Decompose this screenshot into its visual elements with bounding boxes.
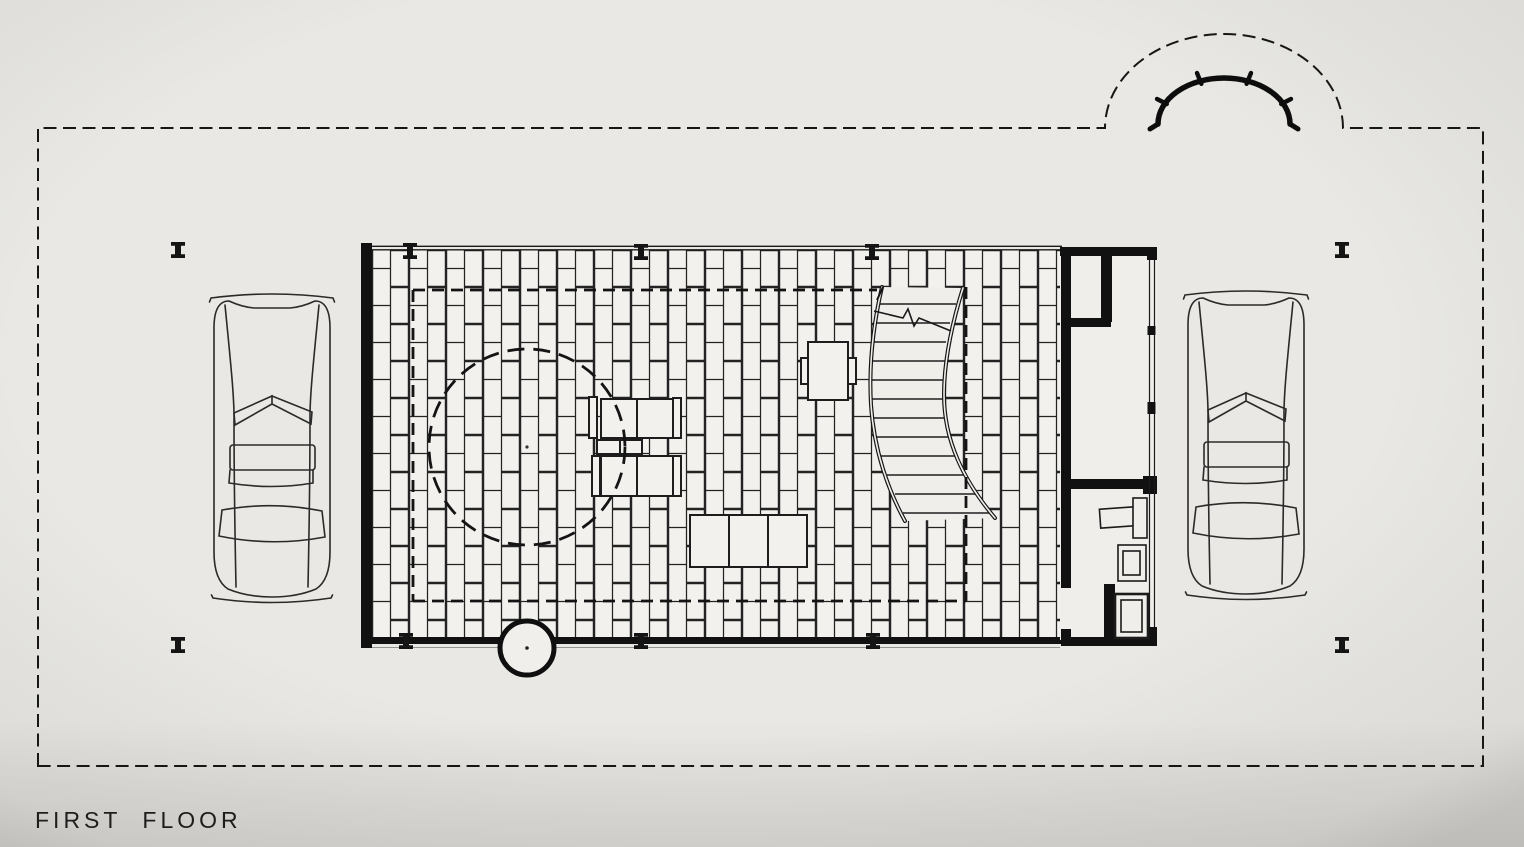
counter <box>1099 507 1134 528</box>
bath-stub-wall <box>1104 584 1115 640</box>
floor-plan-sheet: FIRST FLOOR <box>0 0 1524 847</box>
lounge-chair-upper <box>589 397 681 438</box>
shower-inner <box>1121 600 1142 632</box>
side-table <box>597 440 642 454</box>
shelf <box>1133 498 1147 538</box>
plan-title: FIRST FLOOR <box>35 807 242 833</box>
sofa <box>690 515 807 567</box>
closet-partition-h <box>1071 318 1111 327</box>
armchair <box>801 342 856 400</box>
south-edge <box>361 637 1062 644</box>
service-core <box>1060 247 1157 646</box>
core-west-wall <box>1061 247 1071 588</box>
west-wall <box>361 243 372 648</box>
enclosure-center-dot <box>525 445 528 448</box>
floor-plan-drawing: FIRST FLOOR <box>0 0 1524 847</box>
closet-partition-v <box>1101 256 1112 322</box>
core-north-wall <box>1060 247 1157 256</box>
fixture-inner <box>1123 551 1140 575</box>
round-column <box>500 621 554 675</box>
bath-partition <box>1071 479 1147 489</box>
lounge-chair-lower <box>592 456 681 496</box>
